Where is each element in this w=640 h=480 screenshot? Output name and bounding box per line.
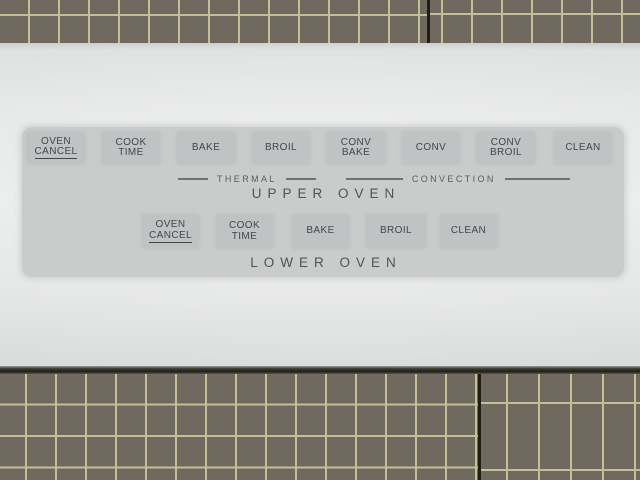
button-label: CONV (416, 143, 447, 154)
button-label: TIME (232, 232, 258, 243)
button-label: CANCEL (149, 231, 192, 243)
lower-oven-label: LOWER OVEN (22, 255, 624, 270)
control-overlay: THERMAL CONVECTION UPPER OVEN LOWER OVEN… (22, 127, 624, 277)
cutting-mat-top-left (0, 0, 427, 43)
divider-line (346, 178, 403, 180)
oven-control-panel: THERMAL CONVECTION UPPER OVEN LOWER OVEN… (0, 43, 640, 366)
button-label: COOK (229, 221, 260, 232)
button-label: BROIL (265, 143, 297, 154)
divider-line (178, 178, 208, 180)
upper-bake-button[interactable]: BAKE (177, 132, 235, 164)
button-label: CLEAN (451, 226, 486, 237)
button-label: BAKE (342, 148, 370, 159)
upper-conv-button[interactable]: CONV (402, 132, 460, 164)
button-label: CANCEL (35, 147, 78, 159)
thermal-group-label: THERMAL (217, 174, 277, 184)
panel-bottom-shadow (0, 366, 640, 374)
divider-line (505, 178, 570, 180)
lower-clean-button[interactable]: CLEAN (440, 215, 497, 248)
button-label: TIME (118, 148, 144, 159)
convection-group-label: CONVECTION (412, 174, 496, 184)
button-label: BROIL (380, 226, 412, 237)
lower-oven-cancel-button[interactable]: OVENCANCEL (142, 215, 199, 248)
cutting-mat-bottom-left (0, 374, 478, 480)
mode-group-divider: THERMAL CONVECTION (178, 174, 578, 184)
cutting-mat-bottom-right (478, 374, 640, 480)
upper-conv-bake-button[interactable]: CONVBAKE (327, 132, 385, 164)
lower-cook-time-button[interactable]: COOKTIME (216, 215, 273, 248)
upper-oven-label: UPPER OVEN (22, 186, 624, 201)
upper-broil-button[interactable]: BROIL (252, 132, 310, 164)
button-label: BAKE (192, 143, 220, 154)
button-label: BROIL (490, 148, 522, 159)
upper-oven-cancel-button[interactable]: OVENCANCEL (27, 132, 85, 164)
divider-line (286, 178, 316, 180)
upper-clean-button[interactable]: CLEAN (554, 132, 612, 164)
button-label: BAKE (306, 226, 334, 237)
lower-broil-button[interactable]: BROIL (366, 215, 426, 248)
cutting-mat-top-right (427, 0, 640, 43)
photo-scene: THERMAL CONVECTION UPPER OVEN LOWER OVEN… (0, 0, 640, 480)
button-label: CLEAN (565, 143, 600, 154)
upper-conv-broil-button[interactable]: CONVBROIL (477, 132, 535, 164)
upper-cook-time-button[interactable]: COOKTIME (102, 132, 160, 164)
lower-bake-button[interactable]: BAKE (292, 215, 349, 248)
